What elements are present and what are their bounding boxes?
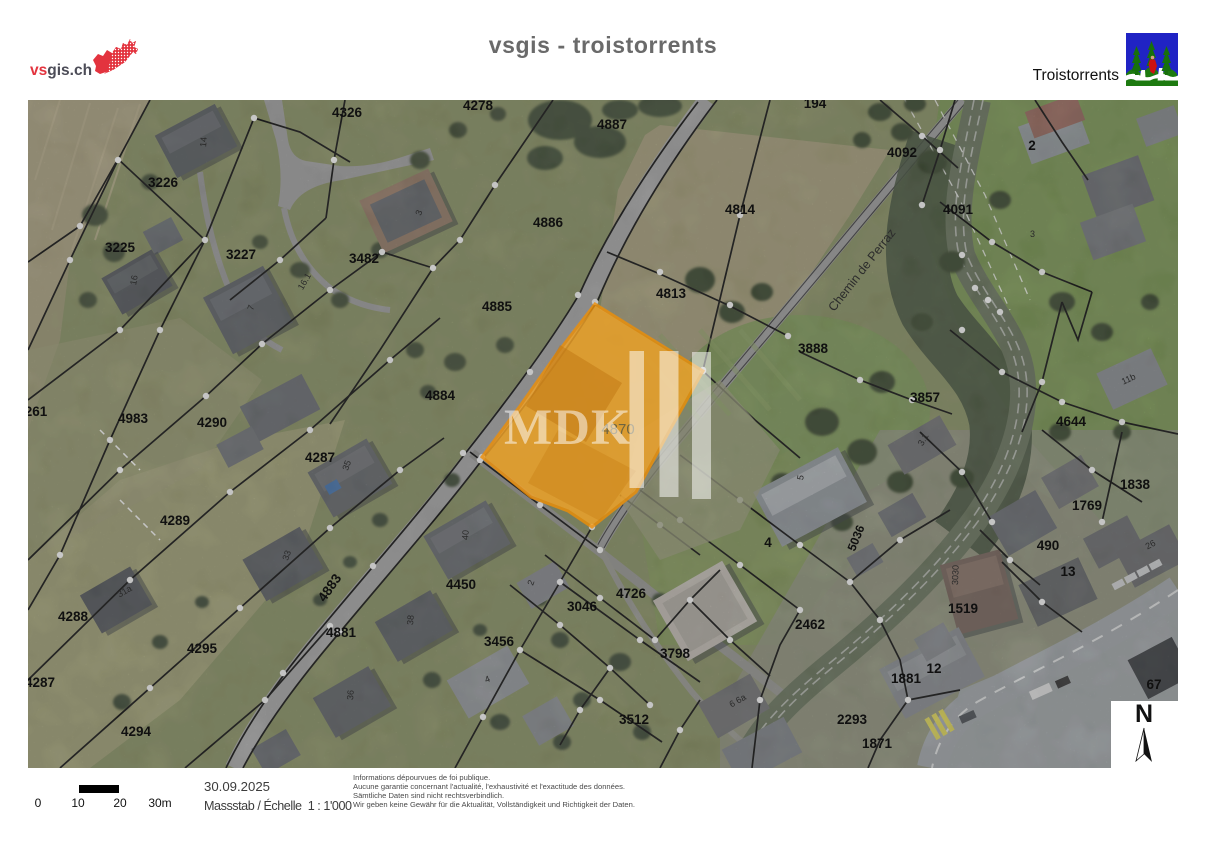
svg-text:4278: 4278 (463, 98, 494, 113)
svg-text:N: N (1135, 700, 1153, 728)
svg-text:1871: 1871 (862, 736, 893, 751)
svg-text:4884: 4884 (425, 388, 456, 403)
svg-text:vsgis - troistorrents: vsgis - troistorrents (489, 32, 718, 58)
svg-text:4289: 4289 (160, 513, 190, 528)
svg-text:16: 16 (128, 274, 140, 286)
svg-text:38: 38 (405, 615, 416, 626)
svg-text:4091: 4091 (943, 202, 974, 217)
svg-text:3857: 3857 (910, 390, 940, 405)
svg-text:2293: 2293 (837, 712, 868, 727)
svg-text:4: 4 (764, 535, 772, 550)
svg-text:3512: 3512 (619, 712, 649, 727)
svg-text:Wir geben keine Gewähr für die: Wir geben keine Gewähr für die Aktualitä… (353, 800, 635, 809)
svg-text:3482: 3482 (349, 251, 379, 266)
svg-text:3456: 3456 (484, 634, 515, 649)
svg-text:4295: 4295 (187, 641, 218, 656)
svg-text:14: 14 (198, 137, 209, 148)
svg-text:Massstab / Échelle 1 : 1'000: Massstab / Échelle 1 : 1'000 (204, 798, 352, 813)
svg-text:20: 20 (113, 796, 127, 810)
svg-text:4294: 4294 (121, 724, 152, 739)
svg-text:1519: 1519 (948, 601, 978, 616)
svg-text:Troistorrents: Troistorrents (1033, 67, 1120, 84)
svg-text:490: 490 (1037, 538, 1060, 553)
svg-text:4450: 4450 (446, 577, 476, 592)
svg-text:3798: 3798 (660, 646, 691, 661)
svg-text:261: 261 (25, 404, 48, 419)
svg-text:4290: 4290 (197, 415, 227, 430)
svg-text:vsgis.ch: vsgis.ch (30, 62, 92, 79)
svg-text:12: 12 (926, 661, 941, 676)
svg-text:Aucune garantie concernant l'a: Aucune garantie concernant l'actualité, … (353, 782, 625, 791)
svg-text:3030: 3030 (950, 565, 961, 585)
svg-text:3: 3 (1030, 229, 1035, 239)
svg-text:4886: 4886 (533, 215, 564, 230)
svg-text:0: 0 (35, 796, 42, 810)
svg-text:4644: 4644 (1056, 414, 1087, 429)
svg-text:3046: 3046 (567, 599, 598, 614)
svg-text:2462: 2462 (795, 617, 825, 632)
svg-text:13: 13 (1060, 564, 1076, 579)
svg-text:3226: 3226 (148, 175, 179, 190)
svg-text:40: 40 (460, 530, 471, 541)
svg-text:30.09.2025: 30.09.2025 (204, 779, 270, 794)
svg-text:1881: 1881 (891, 671, 922, 686)
svg-text:Sämtliche Daten sind nicht rec: Sämtliche Daten sind nicht rechtsverbind… (353, 791, 504, 800)
svg-text:67: 67 (1146, 677, 1161, 692)
svg-text:1838: 1838 (1120, 477, 1151, 492)
svg-text:1769: 1769 (1072, 498, 1102, 513)
svg-text:MDK: MDK (504, 400, 632, 456)
svg-text:4813: 4813 (656, 286, 687, 301)
svg-text:10: 10 (71, 796, 85, 810)
svg-text:4287: 4287 (25, 675, 55, 690)
svg-text:4726: 4726 (616, 586, 647, 601)
svg-text:2: 2 (1028, 138, 1036, 153)
svg-text:36: 36 (345, 690, 356, 701)
svg-text:Informations dépourvues de foi: Informations dépourvues de foi publique. (353, 773, 490, 782)
svg-text:3225: 3225 (105, 240, 136, 255)
svg-text:4326: 4326 (332, 105, 363, 120)
svg-text:4287: 4287 (305, 450, 335, 465)
svg-text:3227: 3227 (226, 247, 256, 262)
svg-text:4887: 4887 (597, 117, 627, 132)
svg-text:4983: 4983 (118, 411, 149, 426)
svg-text:3888: 3888 (798, 341, 829, 356)
svg-text:4885: 4885 (482, 299, 513, 314)
svg-text:4092: 4092 (887, 145, 917, 160)
svg-text:4288: 4288 (58, 609, 89, 624)
svg-text:4814: 4814 (725, 202, 756, 217)
svg-text:30m: 30m (148, 796, 171, 810)
svg-text:4881: 4881 (326, 625, 357, 640)
